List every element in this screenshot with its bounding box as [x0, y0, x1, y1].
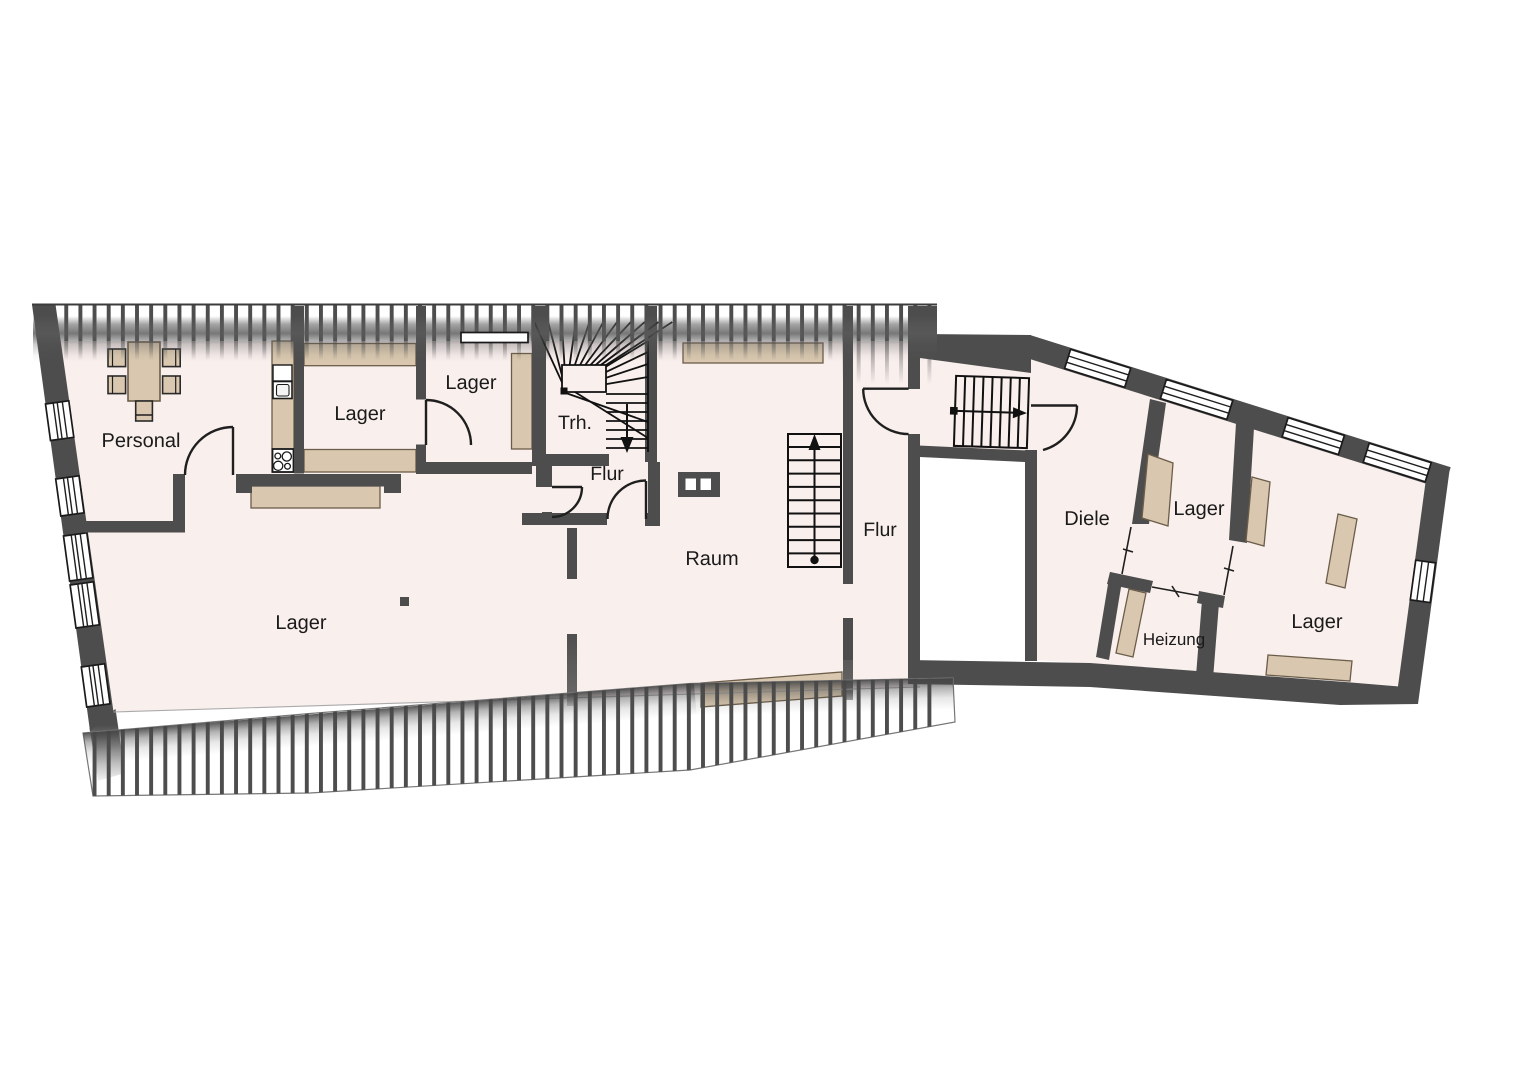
svg-text:Personal: Personal — [102, 430, 181, 452]
svg-text:Flur: Flur — [590, 463, 624, 485]
svg-text:Lager: Lager — [1173, 498, 1224, 520]
svg-text:Lager: Lager — [1291, 611, 1342, 633]
svg-text:Lager: Lager — [445, 372, 496, 394]
svg-text:Heizung: Heizung — [1143, 630, 1205, 649]
svg-text:Diele: Diele — [1064, 508, 1110, 530]
svg-text:Lager: Lager — [334, 403, 385, 425]
svg-text:Lager: Lager — [275, 612, 326, 634]
svg-text:Flur: Flur — [863, 519, 897, 541]
svg-text:Trh.: Trh. — [558, 412, 592, 434]
svg-text:Raum: Raum — [685, 548, 738, 570]
